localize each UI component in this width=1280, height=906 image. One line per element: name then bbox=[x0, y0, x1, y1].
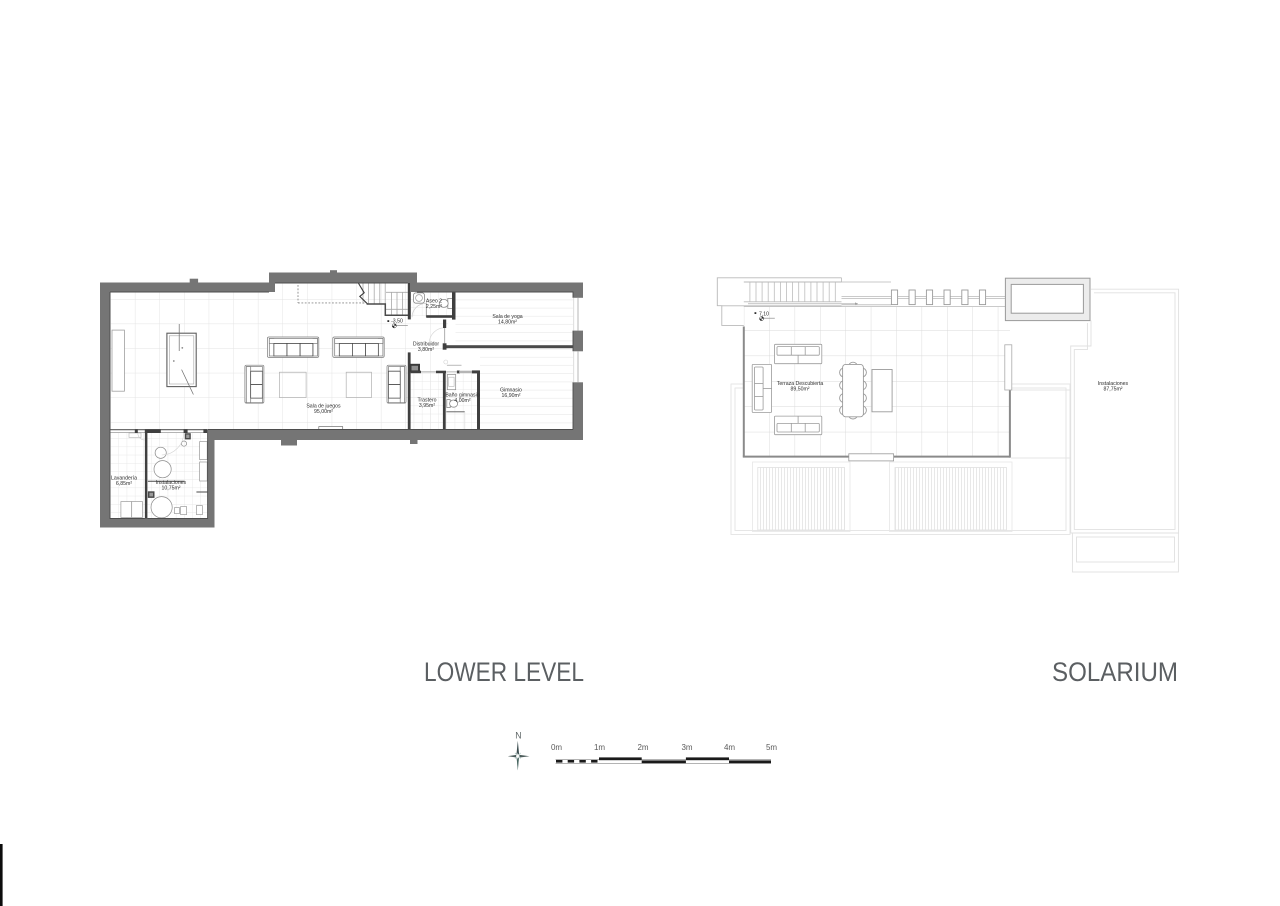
svg-text:5m: 5m bbox=[766, 743, 777, 752]
svg-text:14,80m²: 14,80m² bbox=[498, 320, 517, 326]
svg-text:87,75m²: 87,75m² bbox=[1103, 387, 1122, 393]
svg-text:N: N bbox=[515, 731, 521, 741]
svg-text:-3,50: -3,50 bbox=[391, 319, 403, 325]
svg-text:3m: 3m bbox=[681, 743, 692, 752]
svg-text:1m: 1m bbox=[594, 743, 605, 752]
svg-text:16,90m²: 16,90m² bbox=[501, 393, 520, 399]
svg-text:4,00m²: 4,00m² bbox=[454, 398, 470, 404]
svg-text:2m: 2m bbox=[637, 743, 648, 752]
svg-text:10,75m²: 10,75m² bbox=[161, 486, 180, 492]
svg-text:95,00m²: 95,00m² bbox=[314, 409, 333, 415]
svg-text:6,85m²: 6,85m² bbox=[116, 481, 132, 487]
svg-text:LOWER LEVEL: LOWER LEVEL bbox=[424, 657, 584, 687]
svg-text:2,25m²: 2,25m² bbox=[426, 304, 442, 310]
svg-text:SOLARIUM: SOLARIUM bbox=[1052, 658, 1178, 688]
svg-text:3,80m²: 3,80m² bbox=[418, 347, 434, 353]
svg-text:4m: 4m bbox=[724, 743, 735, 752]
svg-text:3,95m²: 3,95m² bbox=[419, 403, 435, 409]
svg-text:0m: 0m bbox=[551, 743, 562, 752]
svg-text:89,50m²: 89,50m² bbox=[790, 387, 809, 393]
